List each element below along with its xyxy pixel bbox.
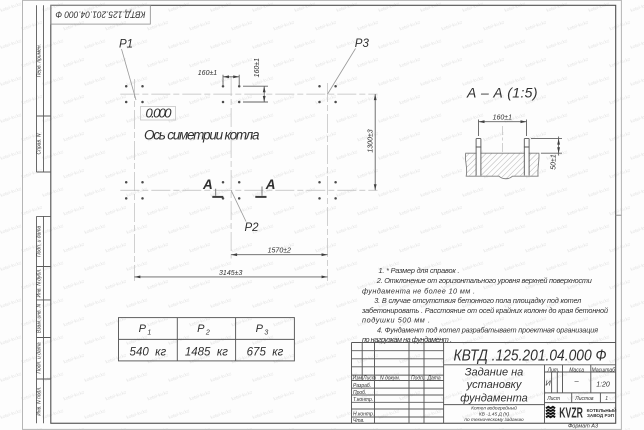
svg-text:3. В случае отсутствия бетонно: 3. В случае отсутствия бетонного пола пл… [374, 296, 581, 305]
svg-text:Котел водогрейный: Котел водогрейный [471, 405, 517, 412]
svg-text:540 кг: 540 кг [130, 347, 167, 359]
svg-text:N докум.: N докум. [380, 375, 400, 381]
svg-text:1300±3: 1300±3 [367, 129, 374, 152]
svg-text:ЗАВОД РЭП: ЗАВОД РЭП [587, 413, 614, 418]
svg-text:Чтв.: Чтв. [353, 418, 365, 424]
svg-text:по техническому заданию: по техническому заданию [464, 417, 524, 423]
svg-text:Взам. инв. N: Взам. инв. N [37, 304, 43, 334]
svg-text:Лит.: Лит. [547, 367, 560, 373]
svg-text:KVZR: KVZR [559, 406, 583, 422]
svg-text:Дата: Дата [427, 375, 441, 381]
svg-text:Масса: Масса [569, 367, 584, 373]
svg-text:Ось симетрии котла: Ось симетрии котла [144, 128, 260, 143]
svg-text:4. Фундамент под котел разраба: 4. Фундамент под котел разрабатывает про… [377, 326, 598, 335]
svg-text:Подп. и дата: Подп. и дата [37, 226, 43, 258]
svg-text:1: 1 [605, 396, 608, 402]
svg-text:А – А (1:5): А – А (1:5) [466, 85, 538, 101]
svg-text:Формат А3: Формат А3 [568, 423, 599, 429]
svg-text:2. Отклонение от горизонтально: 2. Отклонение от горизонтального уровня … [376, 276, 592, 285]
svg-text:подушки 500 мм .: подушки 500 мм . [362, 316, 430, 325]
svg-text:фундамента не более 10 мм .: фундамента не более 10 мм . [362, 286, 475, 295]
svg-text:1570±2: 1570±2 [268, 247, 291, 254]
svg-text:50±1: 50±1 [550, 154, 557, 170]
svg-text:Подп. и дата: Подп. и дата [37, 342, 43, 374]
svg-text:675 кг: 675 кг [247, 347, 284, 359]
svg-text:КВТД .125.201.04.000 Ф: КВТД .125.201.04.000 Ф [454, 347, 607, 364]
svg-text:160±1: 160±1 [254, 58, 261, 78]
svg-text:Т.контр.: Т.контр. [353, 397, 373, 403]
svg-text:P2: P2 [245, 222, 260, 234]
svg-text:3145±3: 3145±3 [219, 270, 242, 277]
svg-text:Проб.: Проб. [353, 390, 366, 396]
svg-text:А: А [265, 177, 276, 192]
svg-text:установку: установку [466, 379, 523, 391]
svg-text:А: А [202, 177, 213, 192]
svg-text:фундамента: фундамента [460, 393, 528, 405]
svg-text:1485 кг: 1485 кг [185, 347, 228, 359]
svg-text:Листов: Листов [574, 396, 594, 402]
svg-text:Изм.Лист: Изм.Лист [353, 375, 377, 381]
svg-text:И: И [545, 379, 551, 388]
svg-text:забетонировать . Расстояние от: забетонировать . Расстояние от осей край… [361, 306, 608, 315]
svg-text:P3: P3 [355, 38, 370, 50]
svg-text:Инв. N дубл.: Инв. N дубл. [37, 269, 43, 298]
svg-text:Задание на: Задание на [465, 366, 524, 378]
svg-text:160±1: 160±1 [493, 115, 513, 122]
svg-text:160±1: 160±1 [198, 70, 218, 77]
svg-text:Лист: Лист [546, 396, 560, 402]
svg-text:Подп.: Подп. [411, 375, 424, 381]
svg-text:–: – [574, 377, 580, 386]
svg-text:1:20: 1:20 [596, 382, 610, 389]
svg-text:КВТД.125.201.04.000 Ф: КВТД.125.201.04.000 Ф [55, 9, 145, 20]
svg-text:Н.контр.: Н.контр. [353, 412, 374, 418]
svg-text:Масштаб: Масштаб [592, 367, 616, 373]
svg-text:КОТЕЛЬНЫЙ: КОТЕЛЬНЫЙ [587, 406, 617, 413]
svg-text:1. * Размер для справок .: 1. * Размер для справок . [379, 266, 460, 275]
svg-text:Справ. N: Справ. N [37, 133, 43, 154]
svg-text:КВ -1,45 Д (К): КВ -1,45 Д (К) [479, 411, 510, 417]
svg-text:P1: P1 [119, 39, 133, 51]
svg-text:Разраб.: Разраб. [353, 383, 371, 389]
svg-text:Перв. примен.: Перв. примен. [37, 44, 43, 77]
svg-text:Инв. N подл.: Инв. N подл. [37, 386, 43, 415]
svg-text:0.000: 0.000 [146, 106, 173, 121]
